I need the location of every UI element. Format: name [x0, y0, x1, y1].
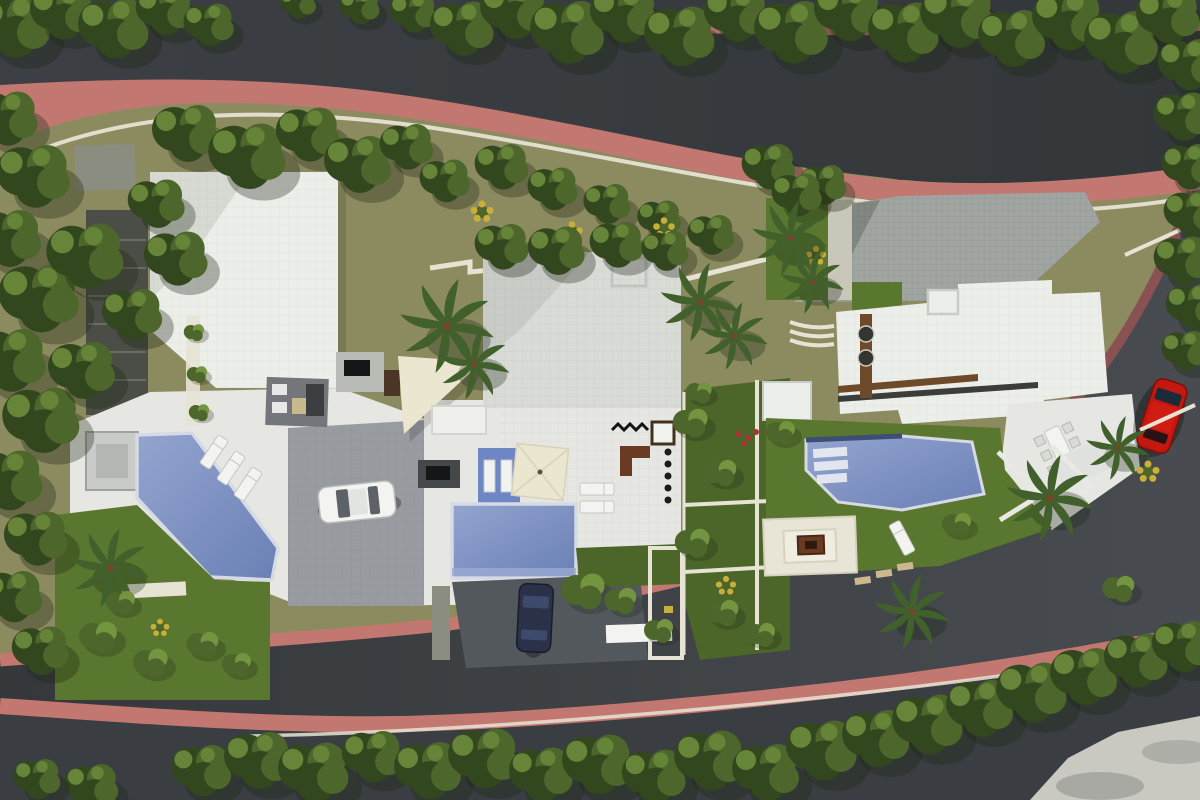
white-door	[484, 460, 495, 492]
round-chair	[858, 326, 874, 342]
tv-screen	[426, 466, 450, 480]
cabinet	[384, 370, 400, 396]
roof-vent	[928, 290, 958, 314]
round-chair	[858, 350, 874, 366]
garden-hut	[763, 382, 811, 420]
outdoor-tv	[344, 360, 370, 376]
sun-lounger	[580, 501, 614, 513]
wall-art-frame	[652, 422, 674, 444]
corner-tree-shadow	[1056, 772, 1144, 800]
rug-armchair	[272, 402, 287, 413]
yellow-plaque	[664, 606, 673, 613]
pool-steps	[813, 447, 849, 484]
rug-sofa	[306, 384, 324, 416]
sunken-lounge	[763, 516, 857, 575]
sun-lounger	[580, 483, 614, 495]
gravel-strip	[432, 586, 450, 660]
site-plan-svg	[0, 0, 1200, 800]
entry-pad	[74, 144, 136, 191]
seating-mat-inner	[96, 444, 128, 478]
pool-mosaic-edge	[452, 568, 576, 576]
middle-villa-pool	[452, 504, 576, 578]
white-door	[501, 460, 512, 492]
rug-armchair	[272, 384, 287, 395]
navy-car	[516, 583, 554, 659]
dining-rug	[432, 406, 486, 434]
parasol	[511, 443, 568, 500]
site-plan-render	[0, 0, 1200, 800]
